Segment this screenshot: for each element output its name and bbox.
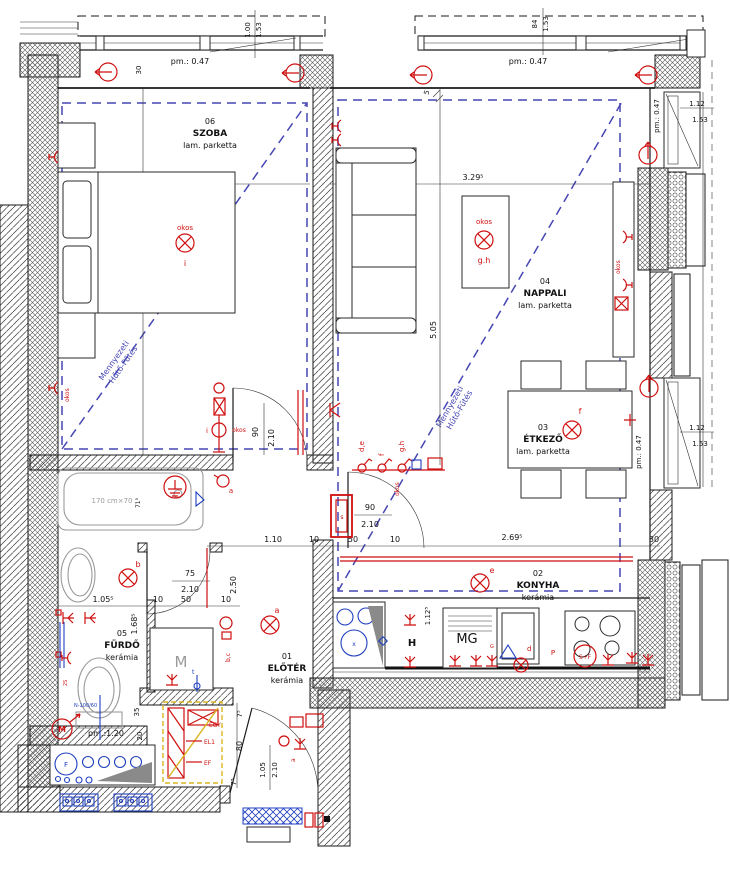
right-insulation1 — [668, 172, 686, 268]
entry-jamb-left — [220, 786, 230, 803]
furdo-door-stub-left — [138, 543, 147, 552]
wall30-top: 30 — [135, 66, 143, 75]
win-ru-b: 1.53 — [692, 116, 708, 124]
grounding-symbol — [164, 476, 186, 498]
nappali-door-switches: d,e f g.h okos — [352, 441, 445, 496]
bathtub-width: 71⁵ — [135, 497, 142, 508]
pillow-1 — [63, 181, 91, 238]
entry-a: a — [290, 758, 297, 762]
balcony-slab-right — [415, 16, 703, 36]
pillow-2 — [63, 246, 91, 303]
chair — [586, 470, 626, 498]
corridor-length: 2.50 — [229, 576, 238, 594]
label-eloter: 01 ELŐTÉR kerámia — [268, 652, 307, 685]
wc-dim35: 35 — [133, 708, 141, 717]
chair — [586, 361, 626, 389]
win-tl-b: 1.53 — [255, 22, 263, 38]
svg-text:okos: okos — [615, 260, 622, 274]
label-nappali: 04 NAPPALI lam. parketta — [518, 277, 572, 310]
svg-text:okos: okos — [64, 388, 71, 402]
svg-text:ELŐTÉR: ELŐTÉR — [268, 662, 307, 674]
svg-text:kerámia: kerámia — [106, 653, 138, 662]
right-wall-column — [638, 60, 728, 708]
balcony-slab-left — [78, 16, 325, 36]
corridor-wall: 10 — [309, 535, 319, 544]
washbasin — [61, 548, 95, 602]
svg-text:a: a — [275, 606, 280, 615]
blue-box — [412, 460, 421, 469]
furdo-door-stub-right — [210, 543, 222, 552]
bathtub-size: 170 cm×70 — [91, 497, 132, 505]
svg-text:SZOBA: SZOBA — [193, 129, 228, 139]
corridor-socket-bc: b,c — [220, 617, 232, 662]
window-right-lower — [664, 378, 700, 488]
wc-model: N-100/60 — [74, 703, 97, 709]
switch-f-label: f — [378, 453, 386, 456]
svg-text:i: i — [184, 259, 186, 268]
balcony-box — [686, 174, 705, 266]
balcony-rail — [20, 22, 78, 34]
kitchen-d: d — [527, 645, 531, 653]
corner-wall-top-right — [655, 55, 700, 88]
win-tr-b: 1.53 — [542, 16, 550, 32]
right-wall-seg3 — [650, 490, 672, 560]
window-sensor-5 — [639, 142, 657, 164]
corner-post — [687, 30, 705, 57]
furdo-door-w: 75 — [185, 569, 195, 578]
svg-text:lam. parketta: lam. parketta — [518, 301, 572, 310]
svg-text:x: x — [352, 641, 356, 648]
switch-de-label: d,e — [358, 441, 366, 452]
gap5: 5 — [423, 89, 432, 95]
furdo-width: 1.05⁵ — [92, 595, 113, 604]
svg-text:f: f — [579, 407, 582, 416]
parapet-top-left: pm.: 0.47 — [171, 57, 209, 66]
svg-text:05: 05 — [117, 629, 127, 638]
tub-socket-a: a — [214, 475, 233, 495]
svg-text:kerámia: kerámia — [271, 676, 303, 685]
left-wall — [28, 55, 58, 787]
window-sensor-4 — [635, 66, 657, 84]
svg-text:lam. parketta: lam. parketta — [183, 141, 237, 150]
corridor-width: 1.10 — [264, 535, 282, 544]
furdo-door-h: 2.10 — [181, 585, 199, 594]
svg-text:FÜRDŐ: FÜRDŐ — [104, 640, 140, 651]
stove-sf: S+F — [579, 654, 592, 661]
toilet: N-100/60 — [74, 658, 122, 728]
heating-pipe — [340, 557, 633, 561]
right-wall-seg4 — [638, 560, 665, 708]
szoba-door-w: 90 — [251, 427, 260, 437]
washing-machine: M — [150, 628, 213, 690]
panel-el1: EL1 — [204, 739, 215, 746]
nappali-depth-dim: 5.05 — [429, 321, 438, 339]
win-rl-a: 1.12 — [689, 424, 705, 432]
win-tl-a: 1.00 — [244, 22, 252, 38]
svg-text:b,c: b,c — [225, 653, 232, 662]
top-pier — [300, 55, 333, 88]
sink-unit: x — [333, 602, 387, 668]
svg-text:M: M — [58, 725, 66, 734]
furdo-seg-c: 10 — [221, 595, 231, 604]
svg-text:a: a — [229, 487, 233, 495]
furdo-seg-a: 10 — [153, 595, 163, 604]
stove-p: P — [551, 649, 555, 657]
win-ru-a: 1.12 — [689, 100, 705, 108]
nappali-door-h: 2.10 — [361, 520, 379, 529]
entry-door-w: 1.05 — [259, 762, 267, 778]
chair — [521, 361, 561, 389]
chair — [521, 470, 561, 498]
doormat — [247, 827, 290, 842]
bathtub: 170 cm×70 71⁵ — [58, 468, 204, 530]
wc-dim20: 20 — [136, 732, 144, 741]
fridge-symbol: H — [404, 614, 416, 667]
parapet-top-right: pm.: 0.47 — [509, 57, 547, 66]
svg-text:g.h: g.h — [478, 256, 491, 265]
szoba-wall-stub — [307, 455, 333, 470]
furdo-seg-b: 50 — [181, 595, 191, 604]
svg-text:okos: okos — [232, 427, 246, 434]
top-window-right — [415, 8, 705, 57]
label-konyha: 02 KONYHA kerámia — [517, 569, 560, 602]
entry-threshold — [243, 808, 302, 824]
switch-i: i — [206, 427, 208, 435]
szoba-door-switches: i okos — [206, 383, 246, 452]
right-wall-seg2 — [650, 272, 672, 378]
nappali-ceiling-label: Mennyezeti Hűtő-Fűtés — [434, 384, 474, 434]
right-insulation2 — [665, 562, 680, 700]
win-tr-a: 84 — [531, 19, 539, 28]
nappali-door-tag: s — [340, 514, 343, 521]
svg-text:e: e — [490, 566, 495, 575]
nappali-door-w: 90 — [365, 503, 375, 512]
svg-text:F: F — [64, 761, 68, 769]
bottom-wall — [18, 787, 220, 812]
svg-text:kerámia: kerámia — [522, 593, 554, 602]
panel-ef: EF — [204, 760, 212, 767]
switch-gh-label: g.h — [398, 441, 406, 452]
svg-text:lam. parketta: lam. parketta — [516, 447, 570, 456]
konyha-lamp: e — [471, 566, 495, 592]
right-wall-seg1 — [638, 168, 668, 270]
window-sensor-3 — [410, 66, 432, 84]
wc-parapet: pm.:1.20 — [88, 729, 124, 738]
kitchen-bottom-wall — [310, 678, 665, 708]
label-szoba: 06 SZOBA lam. parketta — [183, 117, 237, 150]
base-cabinet: d — [497, 608, 539, 672]
svg-text:KONYHA: KONYHA — [517, 581, 560, 591]
parapet-right-lower: pm.: 0.47 — [635, 435, 643, 469]
sofa — [336, 148, 416, 333]
nappali-width-dim: 3.29⁵ — [462, 173, 483, 182]
furdo-left-devices: 2S — [56, 610, 96, 686]
win-rl-b: 1.53 — [692, 440, 708, 448]
counter-depth: 1.12⁵ — [424, 607, 432, 626]
svg-text:okos: okos — [476, 218, 492, 226]
nightstand-2 — [58, 313, 95, 358]
furdo-depth: 1.68⁵ — [130, 613, 139, 634]
washer-label: M — [175, 653, 188, 671]
eloter-konyha-wall — [313, 540, 333, 688]
floor-plan-drawing: Mennyezeti Hűtő-Fűtés Mennyezeti Hűtő-Fű… — [0, 0, 730, 887]
electrical-panel: EGY EL1 EF — [163, 702, 222, 783]
neighbor-wall-left — [0, 205, 28, 812]
fridge-label: H — [408, 638, 416, 649]
tag-2s: 2S — [63, 680, 69, 686]
kitchen-wall30: 30 — [649, 535, 659, 544]
kitchen-seg-b: 10 — [390, 535, 400, 544]
dishwasher: MG G — [443, 608, 498, 668]
svg-text:03: 03 — [538, 423, 548, 432]
right-outer-edge — [702, 560, 728, 700]
window-sensor-1 — [95, 63, 117, 81]
parapet-right-upper: pm.: 0.47 — [653, 99, 661, 133]
nightstand-1 — [58, 123, 95, 168]
svg-text:okos: okos — [177, 224, 193, 232]
svg-text:01: 01 — [282, 652, 292, 661]
svg-text:04: 04 — [540, 277, 550, 286]
svg-text:okos: okos — [394, 482, 401, 496]
svg-text:06: 06 — [205, 117, 215, 126]
svg-text:02: 02 — [533, 569, 543, 578]
dining-set — [508, 361, 632, 498]
szoba-ceiling-label: Mennyezeti Hűtő-Fűtés — [97, 339, 139, 388]
entry-door-h: 2.10 — [271, 762, 279, 778]
dining-table — [508, 391, 632, 468]
balcony-door — [674, 274, 690, 376]
svg-text:b: b — [135, 560, 140, 569]
konyha-width: 2.69⁵ — [501, 533, 522, 542]
dishwasher-label: MG — [456, 632, 477, 647]
svg-text:NAPPALI: NAPPALI — [524, 289, 567, 299]
szoba-door-h: 2.10 — [267, 429, 276, 447]
kitchen-g: G — [490, 644, 494, 650]
kitchen-window — [682, 565, 700, 695]
szoba-door — [233, 388, 307, 462]
svg-text:ÉTKEZŐ: ÉTKEZŐ — [523, 433, 563, 445]
nappali-door: s — [331, 472, 424, 548]
furdo-lamp: b — [119, 560, 141, 587]
floor-plan-page: Mennyezeti Hűtő-Fűtés Mennyezeti Hűtő-Fű… — [0, 0, 730, 887]
panel-egy: EGY — [209, 722, 221, 729]
eloter-lamp: a — [261, 606, 280, 634]
